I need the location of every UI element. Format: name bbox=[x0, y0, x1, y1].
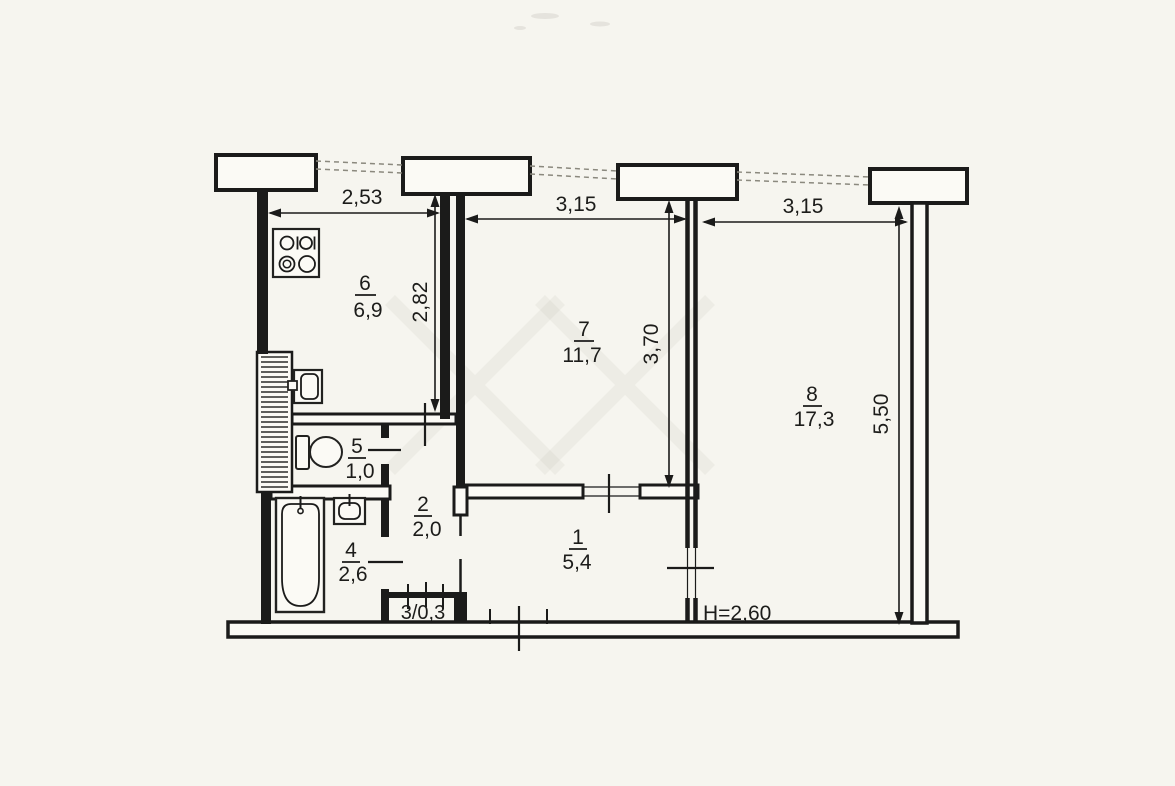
right-wall bbox=[912, 203, 927, 623]
kitchen-left-wall bbox=[257, 188, 268, 354]
room-7-area: 11,7 bbox=[562, 344, 601, 367]
window-pier-4 bbox=[870, 169, 967, 203]
bath-wall-seg-a bbox=[381, 499, 389, 537]
room-7-number: 7 bbox=[578, 318, 590, 341]
room-8-number: 8 bbox=[806, 383, 818, 406]
room-2-area: 2,0 bbox=[412, 518, 441, 541]
room2-right-wall bbox=[456, 193, 465, 488]
bathroom-left-wall bbox=[261, 491, 271, 624]
bathtub-icon bbox=[276, 496, 324, 612]
closet-corner-block bbox=[454, 592, 467, 623]
washbasin-icon bbox=[334, 494, 365, 524]
room-1-area: 5,4 bbox=[562, 551, 592, 574]
room-6-number: 6 bbox=[359, 272, 371, 295]
floor-plan-page: 2,53 3,15 3,15 2,82 3,70 bbox=[0, 0, 1175, 786]
closet-top-wall bbox=[389, 592, 456, 598]
dim-top-right-label: 3,15 bbox=[783, 195, 824, 218]
stove-icon bbox=[273, 229, 319, 277]
window-pier-1 bbox=[216, 155, 316, 190]
vent-shaft bbox=[257, 352, 292, 492]
room-4-number: 4 bbox=[345, 539, 357, 562]
room-5-number: 5 bbox=[351, 435, 363, 458]
dim-top-left-label: 2,53 bbox=[342, 186, 383, 209]
dim-kitchen-depth-label: 2,82 bbox=[409, 282, 432, 323]
dim-top-middle-label: 3,15 bbox=[556, 193, 597, 216]
dim-room7-depth-label: 3,70 bbox=[640, 324, 663, 365]
window-pier-2 bbox=[403, 158, 530, 194]
floor-plan-drawing: 2,53 3,15 3,15 2,82 3,70 bbox=[0, 0, 1175, 786]
room-3-label: 3/0,3 bbox=[401, 602, 445, 624]
kitchen-bottom-wall bbox=[292, 414, 456, 424]
room-2-number: 2 bbox=[417, 493, 429, 516]
ceiling-height-note: H=2,60 bbox=[703, 602, 771, 625]
bottom-wall bbox=[228, 622, 958, 637]
wc-wall-seg-a bbox=[381, 424, 389, 438]
window-pier-3 bbox=[618, 165, 737, 199]
hall-jamb-block bbox=[454, 487, 467, 515]
dim-room8-depth-label: 5,50 bbox=[870, 394, 893, 435]
room-1-number: 1 bbox=[572, 526, 584, 549]
kitchen-sink-icon bbox=[288, 370, 322, 403]
room-6-area: 6,9 bbox=[353, 299, 382, 322]
toilet-icon bbox=[296, 436, 342, 469]
room-8-area: 17,3 bbox=[794, 408, 835, 431]
paper-background bbox=[0, 0, 1175, 786]
room-5-area: 1,0 bbox=[345, 460, 374, 483]
room1-top-wall-left bbox=[465, 485, 583, 498]
room-4-area: 2,6 bbox=[338, 563, 367, 586]
bath-wall-seg-b bbox=[381, 589, 389, 623]
kitchen-room7-wall bbox=[440, 193, 450, 419]
wc-wall-seg-b bbox=[381, 464, 389, 487]
